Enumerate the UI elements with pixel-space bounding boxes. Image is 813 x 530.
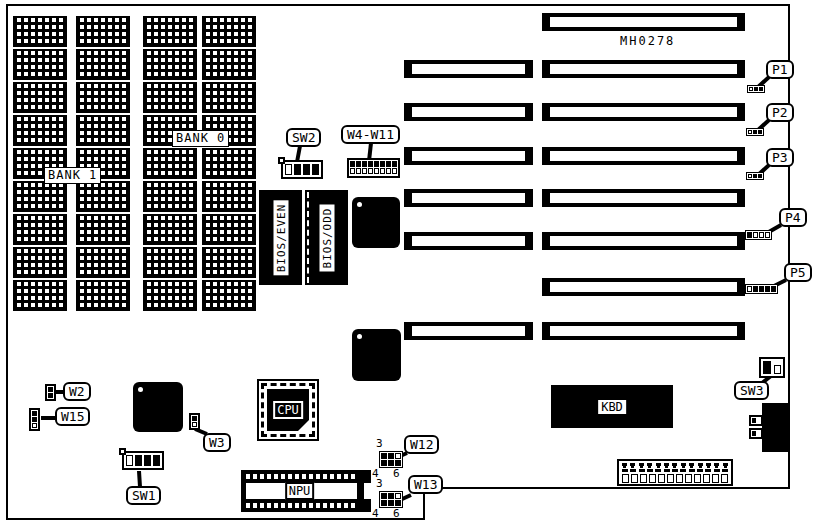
connector-pin bbox=[758, 174, 762, 178]
jumper-cell bbox=[392, 161, 397, 167]
connector-socket bbox=[703, 474, 710, 483]
switch-corner-mark bbox=[278, 157, 285, 164]
connector-pin bbox=[705, 469, 711, 472]
jumper-label-w4-w11: W4-W11 bbox=[341, 125, 400, 144]
jumper-cell-open bbox=[395, 453, 401, 459]
w12-pin6-number: 6 bbox=[393, 468, 400, 479]
din-pin bbox=[752, 431, 756, 436]
connector-pin bbox=[723, 463, 728, 466]
jumper-cell bbox=[32, 417, 37, 422]
connector-pin bbox=[759, 232, 764, 238]
connector-socket bbox=[667, 474, 674, 483]
jumper-block-w12 bbox=[379, 451, 403, 468]
connector-label-p1: P1 bbox=[766, 60, 794, 79]
connector-pin bbox=[630, 469, 636, 472]
w13-pin6-number: 6 bbox=[393, 508, 400, 519]
connector-socket bbox=[676, 474, 683, 483]
switch-cell-open bbox=[126, 455, 133, 466]
motherboard-diagram: BANK 1 BANK 0 MH0278 P1 P2 P3 P4 P5 SW2 … bbox=[0, 0, 813, 530]
connector-pin bbox=[656, 463, 661, 466]
connector-pin bbox=[759, 87, 763, 91]
connector-pin bbox=[722, 469, 728, 472]
jumper-cell-open bbox=[395, 493, 401, 499]
connector-pin bbox=[714, 463, 719, 466]
switch-sw3 bbox=[759, 357, 785, 378]
connector-label-p2: P2 bbox=[766, 103, 794, 122]
connector-pin bbox=[672, 463, 677, 466]
switch-label-sw3: SW3 bbox=[734, 381, 769, 400]
connector-pin bbox=[748, 174, 752, 178]
switch-cell bbox=[144, 455, 151, 466]
jumper-cell-open bbox=[368, 168, 373, 174]
connector-socket bbox=[721, 474, 728, 483]
connector-pin bbox=[672, 469, 678, 472]
connector-pin bbox=[753, 286, 758, 292]
connector-pin bbox=[630, 463, 635, 466]
w13-pin4-number: 4 bbox=[372, 508, 379, 519]
connector-pin bbox=[753, 130, 757, 134]
board-id-text: MH0278 bbox=[620, 34, 675, 48]
switch-label-sw2: SW2 bbox=[286, 128, 321, 147]
connector-pin bbox=[639, 469, 645, 472]
switch-cell bbox=[303, 164, 310, 175]
jumper-cell bbox=[48, 387, 53, 392]
connector-socket bbox=[658, 474, 665, 483]
connector-pin bbox=[639, 463, 644, 466]
switch-cell bbox=[153, 455, 160, 466]
jumper-cell-open bbox=[386, 168, 391, 174]
connector-socket bbox=[640, 474, 647, 483]
connector-pin bbox=[747, 232, 752, 238]
connector-socket bbox=[649, 474, 656, 483]
bottom-connector-pin-row-top bbox=[622, 463, 728, 466]
jumper-cell bbox=[388, 500, 394, 506]
connector-pin bbox=[664, 469, 670, 472]
jumper-cell bbox=[381, 493, 387, 499]
jumper-cell bbox=[388, 460, 394, 466]
connector-pin bbox=[771, 286, 776, 292]
bottom-header-connector bbox=[617, 459, 733, 486]
jumper-label-w15: W15 bbox=[55, 407, 90, 426]
jumper-cell bbox=[388, 493, 394, 499]
switch-cell bbox=[294, 164, 301, 175]
jumper-label-w3: W3 bbox=[203, 433, 231, 452]
jumper-cell bbox=[395, 460, 401, 466]
connector-pin bbox=[680, 469, 686, 472]
connector-pin bbox=[647, 463, 652, 466]
connector-p1 bbox=[747, 85, 765, 93]
jumper-cell bbox=[32, 411, 37, 416]
connector-socket bbox=[712, 474, 719, 483]
switch-cell bbox=[312, 164, 319, 175]
jumper-w15 bbox=[29, 408, 40, 431]
connector-pin bbox=[759, 286, 764, 292]
connector-label-p4: P4 bbox=[779, 208, 807, 227]
jumper-cell bbox=[395, 500, 401, 506]
din-pin-box bbox=[749, 428, 763, 439]
connector-socket bbox=[622, 474, 629, 483]
jumper-w3 bbox=[189, 413, 200, 430]
switch-cell-open bbox=[774, 365, 781, 374]
switch-sw2 bbox=[281, 160, 323, 179]
w13-pin3-number: 3 bbox=[376, 478, 383, 489]
din-pin-box bbox=[749, 415, 763, 426]
jumper-cell bbox=[381, 453, 387, 459]
jumper-cell-open bbox=[380, 168, 385, 174]
jumper-cell bbox=[192, 416, 197, 421]
connector-p2 bbox=[746, 128, 764, 136]
switch-cell bbox=[135, 455, 142, 466]
connector-pin bbox=[689, 469, 695, 472]
jumper-cell bbox=[48, 393, 53, 398]
jumper-row-bottom bbox=[350, 168, 397, 174]
connector-pin bbox=[765, 286, 770, 292]
connector-pin bbox=[747, 286, 752, 292]
connector-pin bbox=[714, 469, 720, 472]
switch-label-sw1: SW1 bbox=[126, 486, 161, 505]
jumper-cell bbox=[368, 161, 373, 167]
jumper-cell-open bbox=[374, 168, 379, 174]
jumper-cell-open bbox=[392, 168, 397, 174]
jumper-cell-open bbox=[192, 422, 197, 427]
connector-pin bbox=[664, 463, 669, 466]
bank0-label: BANK 0 bbox=[172, 130, 229, 147]
jumper-cell bbox=[350, 161, 355, 167]
connector-pin bbox=[698, 463, 703, 466]
connector-pin bbox=[749, 87, 753, 91]
connector-pin bbox=[689, 463, 694, 466]
connector-pin bbox=[758, 130, 762, 134]
connector-pin bbox=[697, 469, 703, 472]
connector-pin bbox=[765, 232, 770, 238]
jumper-cell bbox=[381, 460, 387, 466]
jumper-cell-open bbox=[356, 168, 361, 174]
switch-cell-open bbox=[285, 164, 292, 175]
pcb-outline bbox=[7, 5, 789, 519]
connector-pin bbox=[753, 174, 757, 178]
jumper-cell-open bbox=[362, 168, 367, 174]
jumper-label-w12: W12 bbox=[404, 435, 439, 454]
jumper-w2 bbox=[45, 384, 56, 401]
connector-socket bbox=[694, 474, 701, 483]
jumper-cell bbox=[388, 453, 394, 459]
din-pin bbox=[752, 418, 756, 423]
jumper-cell-open bbox=[350, 168, 355, 174]
switch-cell bbox=[763, 361, 771, 374]
switch-sw1 bbox=[122, 451, 164, 470]
connector-p3 bbox=[746, 172, 764, 180]
jumper-block-w13 bbox=[379, 491, 403, 508]
bank1-label: BANK 1 bbox=[44, 167, 101, 184]
jumper-cell-open bbox=[32, 423, 37, 428]
jumper-cell bbox=[380, 161, 385, 167]
connector-pin bbox=[655, 469, 661, 472]
jumper-block-w4-w11 bbox=[347, 158, 400, 178]
jumper-label-w13: W13 bbox=[408, 475, 443, 494]
jumper-cell bbox=[381, 500, 387, 506]
connector-pin bbox=[754, 87, 758, 91]
connector-pin bbox=[706, 463, 711, 466]
connector-label-p5: P5 bbox=[784, 263, 812, 282]
connector-pin bbox=[753, 232, 758, 238]
jumper-cell bbox=[362, 161, 367, 167]
bottom-connector-socket-row bbox=[622, 474, 728, 483]
jumper-cell bbox=[356, 161, 361, 167]
keyboard-din-connector bbox=[762, 403, 790, 452]
connector-p4 bbox=[745, 230, 772, 240]
connector-pin bbox=[647, 469, 653, 472]
connector-pin bbox=[622, 463, 627, 466]
switch-corner-mark bbox=[119, 448, 126, 455]
connector-pin bbox=[748, 130, 752, 134]
jumper-label-w2: W2 bbox=[63, 382, 91, 401]
connector-p5 bbox=[745, 284, 778, 294]
connector-label-p3: P3 bbox=[766, 148, 794, 167]
jumper-cell bbox=[386, 161, 391, 167]
bottom-connector-pin-row-mid bbox=[622, 469, 728, 472]
connector-pin bbox=[622, 469, 628, 472]
jumper-row-top bbox=[350, 161, 397, 167]
w12-pin3-number: 3 bbox=[376, 438, 383, 449]
connector-socket bbox=[685, 474, 692, 483]
connector-socket bbox=[631, 474, 638, 483]
jumper-cell bbox=[374, 161, 379, 167]
connector-pin bbox=[681, 463, 686, 466]
